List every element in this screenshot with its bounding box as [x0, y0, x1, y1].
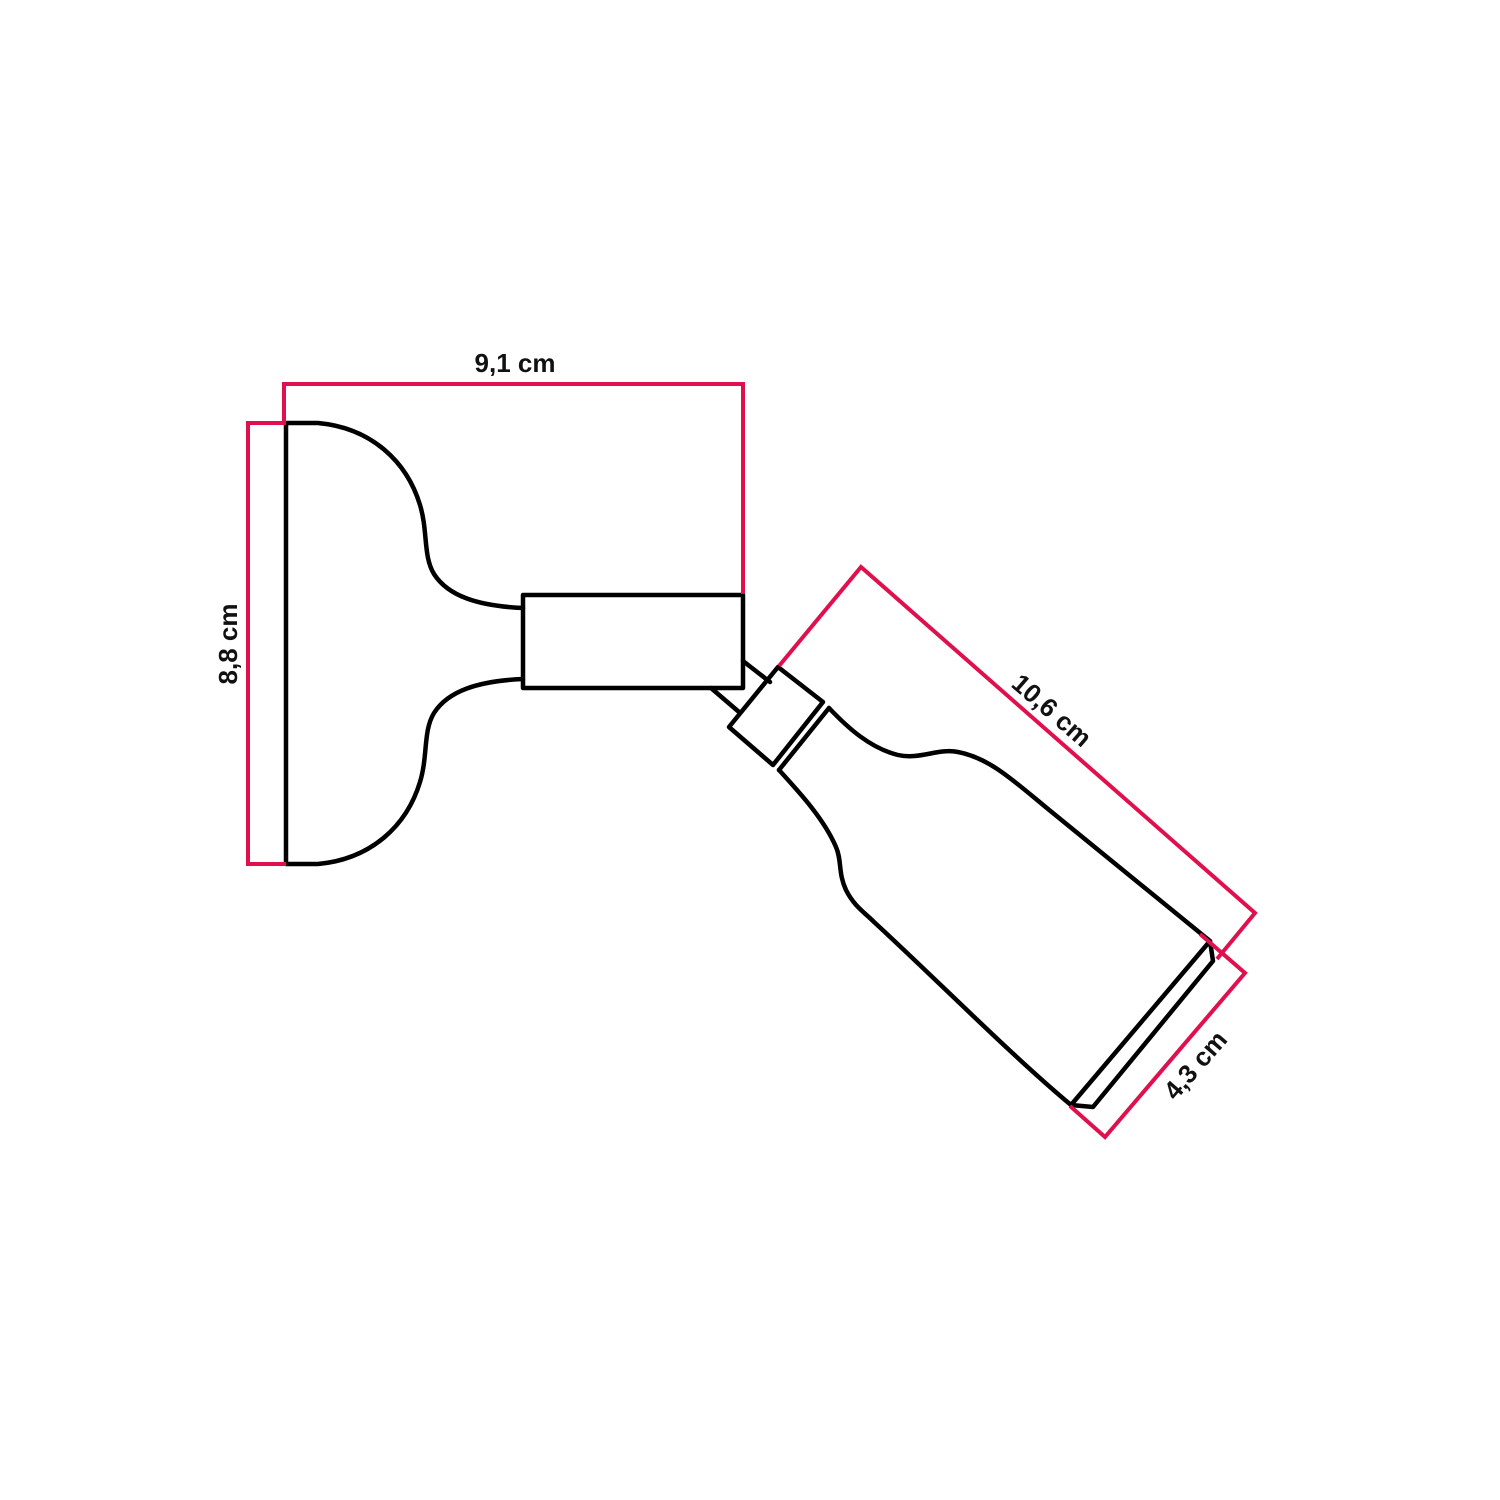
dimension-bracket-plate-width — [284, 384, 743, 594]
label-plate-height: 8,8 cm — [213, 604, 243, 685]
product-outline — [286, 423, 1213, 1107]
dimension-diagram-canvas: 9,1 cm 8,8 cm 10,6 cm 4,3 cm — [0, 0, 1500, 1500]
wall-plate-outline — [286, 423, 523, 864]
dimension-bracket-plate-height — [248, 423, 286, 864]
pivot-rim-line — [779, 708, 829, 770]
dimension-labels: 9,1 cm 8,8 cm 10,6 cm 4,3 cm — [213, 348, 1233, 1105]
dimension-lines — [248, 384, 1255, 1137]
label-body-length: 10,6 cm — [1006, 668, 1098, 753]
label-plate-width: 9,1 cm — [475, 348, 556, 378]
joint-cylinder — [523, 595, 743, 688]
